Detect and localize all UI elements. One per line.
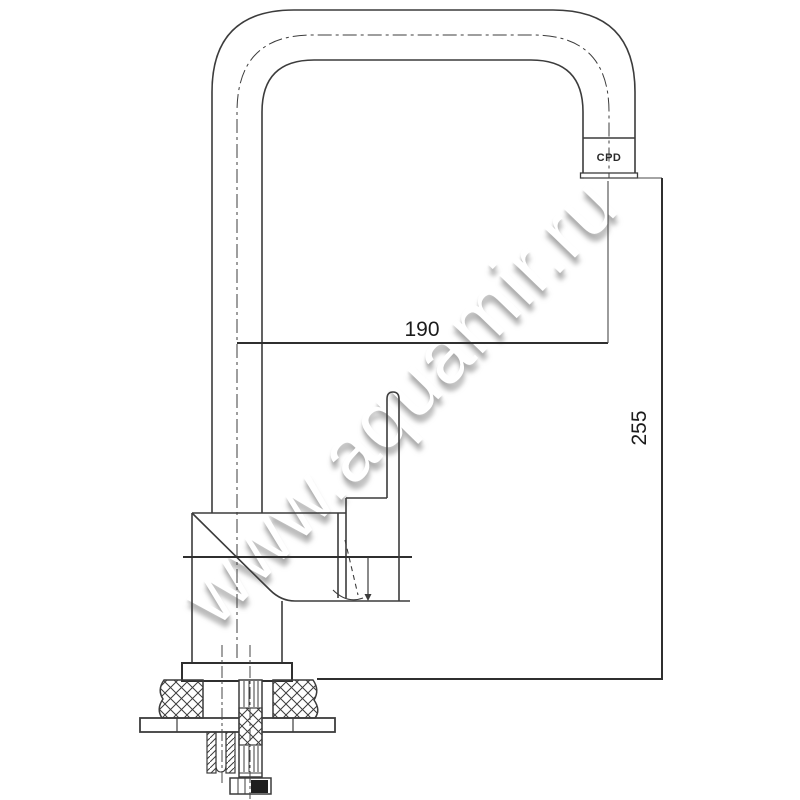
dim-190-label: 190	[404, 318, 439, 341]
aerator-label: CPD	[597, 152, 622, 164]
spout-centerline	[237, 35, 609, 658]
dimension-spout-height: 255	[584, 178, 662, 679]
lever-tilt-dashed	[345, 540, 358, 595]
mounting-assembly	[140, 645, 663, 799]
faucet-technical-drawing: www.aquamir.ru CPD 190	[0, 0, 800, 800]
dimension-spout-reach: 190	[237, 181, 608, 343]
dim-255-label: 255	[628, 410, 651, 445]
washer-plate	[140, 718, 335, 732]
spout-inner-line	[262, 60, 583, 513]
countertop-block-left	[159, 680, 203, 718]
drawing-svg: CPD 190 255	[0, 0, 800, 800]
supply-tube-bore	[216, 732, 226, 772]
lever-pivot-arrow	[365, 594, 372, 601]
spout-outer-line	[212, 10, 635, 513]
supply-tube-wall-left	[207, 732, 216, 773]
lever-rod	[387, 392, 399, 601]
aerator-box: CPD	[581, 138, 638, 178]
base-flange	[182, 663, 292, 681]
countertop-block-right	[273, 680, 318, 718]
hose-nut-dark-face	[251, 780, 268, 793]
supply-tube-wall-right	[226, 732, 235, 773]
faucet-body	[183, 498, 412, 663]
handle-lever	[333, 392, 399, 601]
